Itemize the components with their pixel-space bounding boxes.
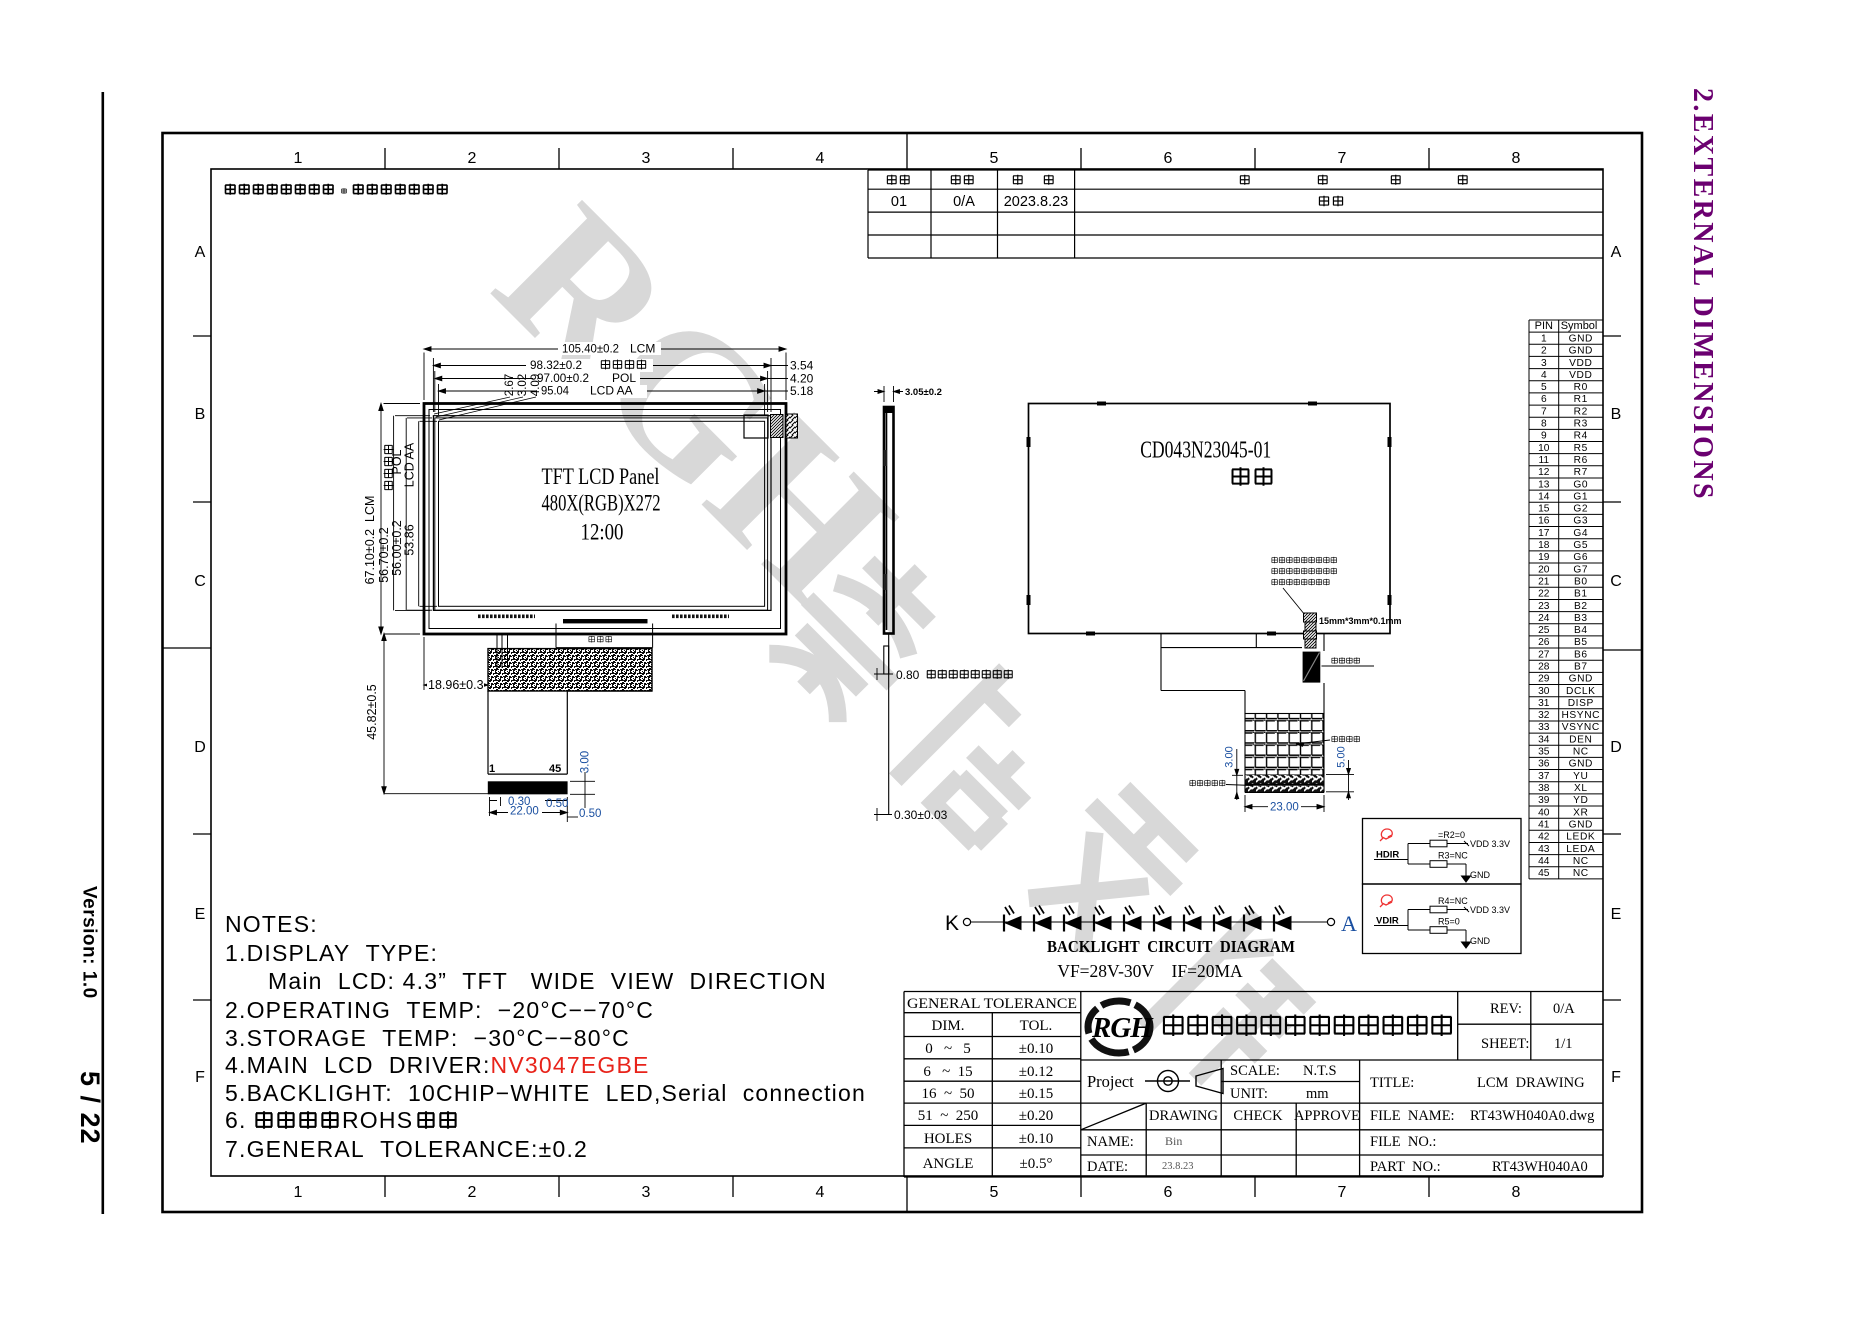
svg-text:YD: YD [1573,795,1588,806]
svg-text:105.40±0.2: 105.40±0.2 [562,342,619,356]
svg-text:C: C [1610,573,1622,590]
svg-text:23: 23 [1538,601,1550,612]
svg-text:6: 6 [1541,394,1547,405]
svg-text:7: 7 [1541,406,1547,417]
svg-text:1: 1 [294,1184,303,1201]
svg-text:±0.10: ±0.10 [1019,1131,1053,1147]
svg-text:26: 26 [1538,637,1550,648]
svg-text:GND: GND [1470,936,1491,946]
svg-text:K: K [945,912,959,935]
svg-text:R5: R5 [1574,443,1588,454]
svg-text:7: 7 [1338,150,1347,167]
svg-text:5: 5 [1541,382,1547,393]
svg-text:27: 27 [1538,649,1550,660]
svg-text:LCM DRAWING: LCM DRAWING [1477,1075,1585,1091]
svg-text:7: 7 [1338,1184,1347,1201]
svg-text:CD043N23045-01: CD043N23045-01 [1140,437,1271,463]
svg-text:1: 1 [1541,333,1547,344]
svg-text:56.70±0.2: 56.70±0.2 [377,527,391,583]
svg-text:39: 39 [1538,795,1550,806]
svg-text:Project: Project [1087,1072,1134,1091]
svg-text:HSYNC: HSYNC [1561,710,1600,721]
svg-text:LCD AA: LCD AA [403,442,417,487]
svg-text:GND: GND [1569,820,1593,831]
svg-text:FILE NO.:: FILE NO.: [1370,1134,1436,1150]
svg-text:=R2=0: =R2=0 [1438,830,1465,840]
svg-text:PIN: PIN [1535,320,1553,332]
svg-text:19: 19 [1538,552,1550,563]
svg-text:LCM: LCM [630,342,655,356]
svg-text:0.50: 0.50 [579,808,601,820]
svg-text:67.10±0.2 LCM: 67.10±0.2 LCM [363,496,377,585]
svg-text:NC: NC [1573,747,1589,758]
svg-text:D: D [1610,739,1622,756]
svg-text:1.DISPLAY TYPE:: 1.DISPLAY TYPE: [225,940,438,966]
svg-text:TFT LCD Panel: TFT LCD Panel [542,464,660,490]
svg-text:8: 8 [1541,419,1547,430]
svg-text:42: 42 [1538,832,1550,843]
svg-text:17: 17 [1538,528,1550,539]
svg-text:35: 35 [1538,747,1550,758]
svg-text:A: A [1341,911,1357,936]
svg-text:5.00: 5.00 [1336,746,1348,767]
svg-text:VDD 3.3V: VDD 3.3V [1470,905,1510,915]
svg-text:mm: mm [1306,1086,1329,1102]
svg-text:8: 8 [1512,1184,1521,1201]
svg-text:8: 8 [1512,150,1521,167]
svg-text:0.50: 0.50 [546,798,568,810]
svg-text:ROHS: ROHS [342,1107,413,1133]
svg-text:4: 4 [816,1184,825,1201]
svg-text:R6: R6 [1574,455,1588,466]
svg-text:F: F [195,1069,205,1086]
svg-text:2: 2 [468,150,477,167]
svg-text:33: 33 [1538,722,1550,733]
svg-text:3: 3 [642,1184,651,1201]
svg-text:±0.5°: ±0.5° [1020,1156,1053,1172]
svg-text:1: 1 [489,763,495,775]
svg-text:DIM.: DIM. [932,1018,965,1034]
svg-text:16 ~ 50: 16 ~ 50 [921,1086,974,1102]
svg-text:1: 1 [294,150,303,167]
svg-text:40: 40 [1538,807,1550,818]
svg-text:LEDK: LEDK [1566,832,1595,843]
svg-text:VF=28V-30V IF=20MA: VF=28V-30V IF=20MA [1057,961,1243,981]
svg-text:6: 6 [1164,150,1173,167]
svg-text:B3: B3 [1574,613,1588,624]
svg-text:16: 16 [1538,516,1550,527]
svg-text:4: 4 [816,150,825,167]
svg-text:DATE:: DATE: [1087,1159,1128,1175]
svg-text:NAME:: NAME: [1087,1134,1134,1150]
svg-text:R3=NC: R3=NC [1438,851,1468,861]
svg-text:B0: B0 [1574,576,1588,587]
svg-text:B1: B1 [1574,589,1588,600]
svg-text:01: 01 [891,194,907,210]
svg-text:R2: R2 [1574,406,1588,417]
svg-text:29: 29 [1538,674,1550,685]
svg-text:E: E [1611,906,1622,923]
svg-text:FILE NAME:: FILE NAME: [1370,1108,1455,1124]
svg-text:LEDA: LEDA [1566,844,1595,855]
svg-text:7.GENERAL TOLERANCE:±0.2: 7.GENERAL TOLERANCE:±0.2 [225,1136,588,1162]
svg-text:R3: R3 [1574,419,1588,430]
svg-text:3: 3 [642,150,651,167]
svg-text:HOLES: HOLES [924,1131,972,1147]
svg-text:B4: B4 [1574,625,1588,636]
svg-text:53.86: 53.86 [403,524,417,555]
svg-text:VDD: VDD [1569,370,1592,381]
svg-text:BACKLIGHT CIRCUIT DIAGRAM: BACKLIGHT CIRCUIT DIAGRAM [1047,937,1295,956]
svg-text:GND: GND [1470,870,1491,880]
svg-text:GND: GND [1569,759,1593,770]
svg-text:VDIR: VDIR [1376,916,1399,927]
svg-text:G3: G3 [1573,516,1588,527]
svg-text:C: C [194,573,206,590]
svg-text:GENERAL TOLERANCE: GENERAL TOLERANCE [907,996,1077,1012]
svg-text:E: E [195,906,206,923]
svg-text:14: 14 [1538,491,1550,502]
svg-text:G7: G7 [1573,564,1588,575]
svg-text:2.EXTERNAL DIMENSIONS: 2.EXTERNAL DIMENSIONS [1687,88,1718,501]
svg-text:G5: G5 [1573,540,1588,551]
svg-text:B: B [195,406,206,423]
svg-text:21: 21 [1538,576,1550,587]
svg-text:6.: 6. [225,1107,247,1133]
svg-text:3: 3 [1541,358,1547,369]
svg-text:5 / 22: 5 / 22 [75,1071,105,1145]
svg-text:15mm*3mm*0.1mm: 15mm*3mm*0.1mm [1319,616,1402,626]
svg-text:37: 37 [1538,771,1550,782]
svg-text:6 ~ 15: 6 ~ 15 [923,1064,972,1080]
svg-text:5: 5 [990,150,999,167]
svg-text:20: 20 [1538,564,1550,575]
svg-text:24: 24 [1538,613,1550,624]
svg-text:22: 22 [1538,589,1550,600]
svg-text:ANGLE: ANGLE [923,1156,974,1172]
svg-text:2023.8.23: 2023.8.23 [1004,194,1069,210]
svg-text:5.BACKLIGHT: 10CHIP−WHITE LE: 5.BACKLIGHT: 10CHIP−WHITE LED,Serial con… [225,1080,866,1106]
svg-text:5.18: 5.18 [790,384,814,398]
svg-text:22.00: 22.00 [510,806,539,818]
svg-text:GND: GND [1569,674,1593,685]
svg-text:B5: B5 [1574,637,1588,648]
svg-text:G1: G1 [1573,491,1588,502]
svg-text:18.96±0.3: 18.96±0.3 [428,678,484,692]
svg-text:0/A: 0/A [953,194,975,210]
svg-text:B7: B7 [1574,662,1588,673]
svg-text:95.04: 95.04 [541,384,569,398]
svg-text:3.05±0.2: 3.05±0.2 [905,387,942,398]
svg-text:43: 43 [1538,844,1550,855]
svg-text:6: 6 [1164,1184,1173,1201]
svg-text:2.OPERATING TEMP: −20°C−−70°: 2.OPERATING TEMP: −20°C−−70°C [225,997,654,1023]
svg-text:480X(RGB)X272: 480X(RGB)X272 [542,491,661,517]
svg-text:23.8.23: 23.8.23 [1162,1161,1194,1172]
svg-text:B2: B2 [1574,601,1588,612]
svg-text:10: 10 [1538,443,1550,454]
svg-text:Version: 1.0: Version: 1.0 [79,886,100,999]
svg-text:0/A: 0/A [1553,1001,1575,1017]
svg-text:RGH: RGH [1091,1012,1154,1044]
svg-text:12: 12 [1538,467,1550,478]
svg-text:R5=0: R5=0 [1438,917,1460,927]
svg-text:±0.20: ±0.20 [1019,1108,1053,1124]
svg-text:32: 32 [1538,710,1550,721]
svg-text:3.00: 3.00 [580,751,592,773]
svg-text:PART NO.:: PART NO.: [1370,1159,1441,1175]
svg-text:XR: XR [1573,807,1588,818]
svg-text:2: 2 [1541,346,1547,357]
svg-text:1/1: 1/1 [1554,1036,1573,1052]
svg-text:45.82±0.5: 45.82±0.5 [365,684,379,740]
svg-text:4.09: 4.09 [530,374,542,396]
svg-text:N.T.S: N.T.S [1303,1063,1337,1079]
svg-text:15: 15 [1538,504,1550,515]
svg-text:DCLK: DCLK [1566,686,1596,697]
svg-text:Main LCD: 4.3” TFT WIDE V: Main LCD: 4.3” TFT WIDE VIEW DIRECTION [268,968,827,994]
svg-text:G4: G4 [1573,528,1588,539]
svg-text:R1: R1 [1574,394,1588,405]
svg-text:44: 44 [1538,856,1550,867]
svg-text:Bin: Bin [1165,1134,1182,1148]
svg-text:R7: R7 [1574,467,1588,478]
svg-text:±0.12: ±0.12 [1019,1064,1053,1080]
svg-text:13: 13 [1538,479,1550,490]
svg-text:98.32±0.2: 98.32±0.2 [530,358,582,372]
svg-text:A: A [195,244,206,261]
svg-text:CHECK: CHECK [1233,1108,1283,1124]
svg-text:0.30±0.03: 0.30±0.03 [894,808,948,822]
svg-text:R4=NC: R4=NC [1438,896,1468,906]
svg-text:RT43WH040A0.dwg: RT43WH040A0.dwg [1470,1108,1594,1124]
svg-text:YU: YU [1573,771,1588,782]
svg-text:3.STORAGE TEMP: −30°C−−80°C: 3.STORAGE TEMP: −30°C−−80°C [225,1025,630,1051]
svg-text:4: 4 [1541,370,1547,381]
svg-text:VSYNC: VSYNC [1562,722,1600,733]
svg-text:R0: R0 [1574,382,1588,393]
svg-text:18: 18 [1538,540,1550,551]
svg-text:RT43WH040A0: RT43WH040A0 [1492,1159,1588,1175]
svg-text:30: 30 [1538,686,1550,697]
svg-text:36: 36 [1538,759,1550,770]
svg-text:45: 45 [549,763,561,775]
svg-text:VDD: VDD [1569,358,1592,369]
svg-text:31: 31 [1538,698,1550,709]
svg-text:5: 5 [990,1184,999,1201]
svg-text:51 ~ 250: 51 ~ 250 [918,1108,979,1124]
svg-text:3.00: 3.00 [1224,746,1236,767]
svg-text:G6: G6 [1573,552,1588,563]
svg-text:±0.10: ±0.10 [1019,1041,1053,1057]
svg-text:G0: G0 [1573,479,1588,490]
svg-text:DRAWING: DRAWING [1149,1108,1218,1124]
svg-text:41: 41 [1538,820,1550,831]
svg-text:28: 28 [1538,662,1550,673]
svg-text:23.00: 23.00 [1270,802,1299,814]
svg-text:11: 11 [1539,455,1550,466]
svg-text:G2: G2 [1573,504,1588,515]
svg-text:REV:: REV: [1490,1001,1522,1017]
svg-text:±0.15: ±0.15 [1019,1086,1053,1102]
svg-text:2: 2 [468,1184,477,1201]
svg-text:LCD AA: LCD AA [590,384,633,398]
svg-text:38: 38 [1538,783,1550,794]
svg-text:HDIR: HDIR [1376,850,1399,861]
svg-text:XL: XL [1574,783,1588,794]
svg-text:DEN: DEN [1569,734,1592,745]
svg-text:45: 45 [1538,868,1550,879]
svg-text:VDD 3.3V: VDD 3.3V [1470,839,1510,849]
svg-text:0.80: 0.80 [896,668,920,682]
svg-text:UNIT:: UNIT: [1230,1086,1268,1102]
svg-text:R4: R4 [1574,431,1588,442]
svg-text:12:00: 12:00 [581,520,624,546]
svg-text:3.02: 3.02 [517,374,529,396]
svg-text:25: 25 [1538,625,1550,636]
svg-text:DISP: DISP [1568,698,1594,709]
svg-text:SHEET:: SHEET: [1481,1036,1529,1052]
svg-text:34: 34 [1538,734,1550,745]
svg-text:3.54: 3.54 [790,359,814,373]
svg-text:Symbol: Symbol [1561,320,1598,332]
svg-text:A: A [1611,244,1622,261]
svg-text:F: F [1611,1069,1621,1086]
svg-text:B6: B6 [1574,649,1588,660]
svg-text:SCALE:: SCALE: [1230,1063,1280,1079]
svg-text:4.MAIN LCD DRIVER:NV3047EGBE: 4.MAIN LCD DRIVER:NV3047EGBE [225,1052,650,1078]
svg-text:NOTES:: NOTES: [225,911,318,937]
svg-text:APPROVE: APPROVE [1294,1108,1360,1124]
svg-text:NC: NC [1573,868,1589,879]
svg-text:D: D [194,739,206,756]
svg-text:GND: GND [1569,333,1593,344]
svg-text:9: 9 [1541,431,1547,442]
svg-text:0 ~ 5: 0 ~ 5 [925,1041,971,1057]
svg-text:2.67: 2.67 [504,374,516,396]
svg-text:B: B [1611,406,1622,423]
svg-text:GND: GND [1569,346,1593,357]
svg-text:NC: NC [1573,856,1589,867]
svg-text:TOL.: TOL. [1020,1018,1053,1034]
svg-text:TITLE:: TITLE: [1370,1075,1414,1091]
